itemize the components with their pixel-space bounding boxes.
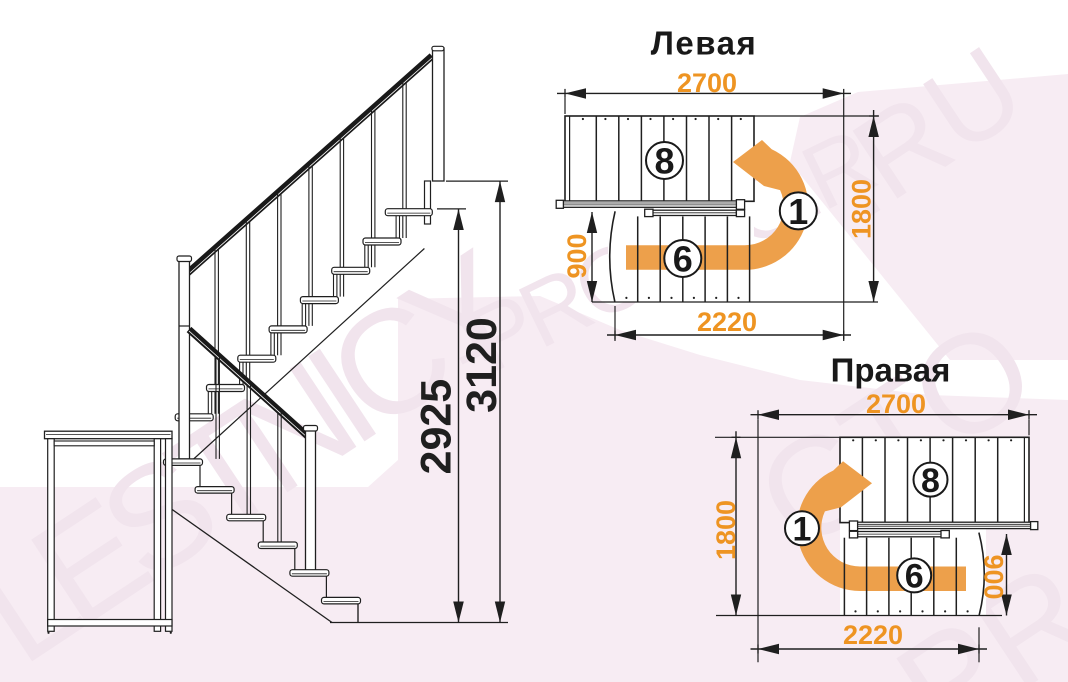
svg-text:1800: 1800 (711, 500, 741, 560)
svg-text:2220: 2220 (697, 307, 757, 337)
svg-text:900: 900 (979, 554, 1009, 599)
svg-text:6: 6 (905, 558, 924, 596)
svg-text:6: 6 (673, 239, 693, 280)
svg-text:1800: 1800 (846, 179, 876, 239)
svg-text:8: 8 (921, 462, 940, 500)
svg-text:900: 900 (562, 233, 592, 278)
svg-text:1: 1 (793, 511, 812, 549)
svg-text:3120: 3120 (458, 317, 506, 413)
svg-text:2220: 2220 (843, 620, 903, 650)
svg-text:8: 8 (654, 141, 674, 182)
svg-text:2700: 2700 (866, 389, 926, 419)
svg-text:Правая: Правая (831, 352, 951, 389)
svg-text:1: 1 (788, 191, 808, 232)
svg-text:Левая: Левая (651, 24, 757, 61)
svg-text:2925: 2925 (413, 379, 461, 475)
svg-text:2700: 2700 (677, 68, 737, 98)
